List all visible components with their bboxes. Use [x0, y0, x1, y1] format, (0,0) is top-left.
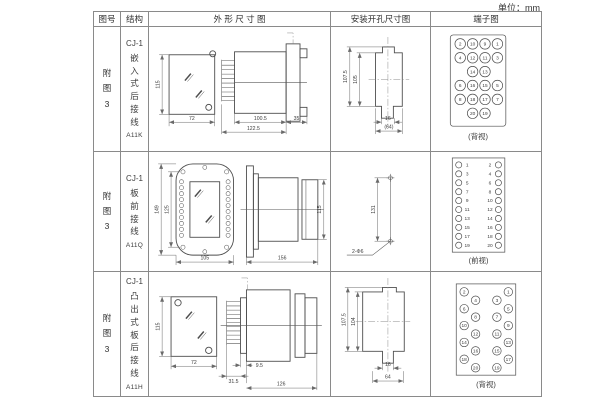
figure-no-text: 附图3 [101, 189, 113, 235]
structure-name: 板前接线 [129, 187, 140, 238]
svg-text:10: 10 [462, 323, 468, 329]
svg-text:12: 12 [487, 207, 493, 213]
dim-slot-width: 16 [385, 116, 391, 122]
install-drawing-a11h: 107.5 104 16 64 [331, 272, 430, 396]
col-header-outline: 外 形 尺 寸 图 [149, 12, 331, 27]
svg-text:18: 18 [470, 97, 476, 103]
svg-text:13: 13 [506, 340, 512, 346]
svg-text:6: 6 [459, 83, 462, 89]
structure-name: 嵌入式后接线 [129, 52, 140, 129]
dim-front-height: 115 [156, 322, 162, 330]
svg-text:8: 8 [474, 315, 477, 321]
svg-text:9: 9 [484, 42, 487, 48]
svg-text:11: 11 [494, 332, 499, 338]
structure-row1: CJ-1 嵌入式后接线 A11K [121, 27, 149, 152]
structure-model: CJ-1 [126, 174, 143, 183]
svg-text:10: 10 [487, 198, 493, 204]
outline-drawing-a11k: 115 72 100.5 35 122.5 [149, 27, 330, 151]
svg-text:13: 13 [465, 216, 471, 222]
front-view: 115 72 [155, 51, 215, 126]
svg-text:5: 5 [496, 83, 499, 89]
outline-drawing-a11q: 149 125 105 156 115 [149, 152, 330, 271]
figure-no-row1: 附图3 [94, 27, 121, 152]
holes-label: 2-Φ6 [352, 249, 364, 255]
terminal-diagram-a11h: 2 6 10 14 18 4 8 12 16 20 3 7 11 15 19 1… [431, 272, 541, 396]
install-drawing-a11q: 131 2-Φ6 [331, 152, 430, 271]
dim-depth: 156 [278, 256, 287, 262]
svg-text:5: 5 [466, 180, 469, 186]
svg-text:10: 10 [470, 42, 476, 48]
spec-table: 图号 结构 外 形 尺 寸 图 安装开孔尺寸图 端子图 附图3 CJ-1 嵌入式… [93, 11, 542, 397]
svg-text:16: 16 [473, 348, 479, 354]
svg-text:5: 5 [507, 306, 510, 312]
dim-total-depth: 126 [277, 382, 286, 388]
svg-text:7: 7 [496, 315, 499, 321]
install-cell-row1: 107.5 105 16 (64) [331, 27, 431, 152]
svg-text:8: 8 [459, 97, 462, 103]
dim-outer-height: 107.5 [341, 313, 347, 326]
svg-text:17: 17 [506, 357, 512, 363]
figure-no-text: 附图3 [101, 66, 113, 112]
svg-text:2: 2 [463, 289, 466, 295]
dim-opening-height: 104 [351, 317, 357, 326]
side-view: 100.5 35 122.5 [222, 33, 307, 134]
terminal-pins: 2 10 9 1 4 12 11 3 14 13 6 16 15 5 8 18 … [455, 39, 503, 119]
terminal-pins: 2 6 10 14 18 4 8 12 16 20 3 7 11 15 19 1… [460, 288, 513, 372]
install-drawing-a11k: 107.5 105 16 (64) [331, 27, 430, 151]
outline-drawing-a11h: 115 72 9.5 31.5 [149, 272, 330, 396]
structure-name: 凸出式板后接线 [129, 290, 140, 379]
structure-code: A11Q [126, 242, 143, 249]
side-view: 156 115 [240, 166, 326, 265]
dim-slot-width: 16 [385, 362, 391, 368]
dim-total-depth: 122.5 [247, 126, 260, 132]
structure-model: CJ-1 [126, 277, 143, 286]
svg-text:20: 20 [470, 111, 476, 117]
svg-text:7: 7 [496, 97, 499, 103]
svg-text:3: 3 [496, 55, 499, 61]
view-label: (背视) [468, 131, 488, 141]
svg-text:6: 6 [489, 180, 492, 186]
svg-text:1: 1 [466, 162, 469, 168]
svg-text:11: 11 [465, 207, 470, 213]
front-view: 149 125 105 [155, 164, 234, 265]
figure-no-row3: 附图3 [94, 272, 121, 396]
svg-text:13: 13 [482, 69, 488, 75]
dim-pins-depth: 31.5 [229, 379, 239, 385]
terminal-pins: 12 34 56 78 910 1112 1314 1516 1718 1920 [456, 162, 502, 249]
svg-text:17: 17 [465, 234, 471, 240]
svg-text:14: 14 [462, 340, 468, 346]
svg-text:2: 2 [489, 162, 492, 168]
structure-code: A11H [126, 384, 143, 391]
svg-text:15: 15 [482, 83, 488, 89]
svg-text:15: 15 [465, 225, 471, 231]
terminal-cell-row3: 2 6 10 14 18 4 8 12 16 20 3 7 11 15 19 1… [431, 272, 541, 396]
dim-flange-depth: 35 [294, 116, 300, 122]
svg-text:14: 14 [470, 69, 476, 75]
terminal-cell-row2: 12 34 56 78 910 1112 1314 1516 1718 1920… [431, 152, 541, 272]
install-cell-row2: 131 2-Φ6 [331, 152, 431, 272]
outline-cell-row2: 149 125 105 156 115 [149, 152, 331, 272]
svg-text:4: 4 [489, 171, 492, 177]
dim-body-depth: 100.5 [254, 116, 267, 122]
dim-total-width: 64 [385, 375, 391, 381]
svg-text:12: 12 [470, 55, 476, 61]
outline-cell-row1: 115 72 100.5 35 122.5 [149, 27, 331, 152]
svg-text:4: 4 [474, 298, 477, 304]
dim-front-height: 115 [155, 80, 161, 88]
dim-outer-height: 149 [155, 205, 161, 214]
terminal-cell-row1: 2 10 9 1 4 12 11 3 14 13 6 16 15 5 8 18 … [431, 27, 541, 152]
svg-text:4: 4 [459, 55, 462, 61]
view-label: (背视) [476, 379, 496, 389]
dim-flange-depth: 9.5 [256, 363, 263, 369]
structure-row2: CJ-1 板前接线 A11Q [121, 152, 149, 272]
svg-text:18: 18 [462, 357, 468, 363]
svg-text:20: 20 [473, 365, 479, 371]
svg-text:3: 3 [496, 298, 499, 304]
dim-opening-height: 105 [353, 75, 359, 84]
svg-text:16: 16 [487, 225, 493, 231]
outline-cell-row3: 115 72 9.5 31.5 [149, 272, 331, 396]
dim-total-width: (64) [384, 125, 393, 131]
svg-text:14: 14 [487, 216, 493, 222]
figure-no-text: 附图3 [101, 311, 113, 357]
structure-code: A11K [126, 132, 143, 139]
svg-text:11: 11 [483, 55, 488, 61]
structure-model: CJ-1 [126, 39, 143, 48]
svg-text:20: 20 [487, 243, 493, 249]
dim-hole-pitch: 131 [371, 205, 377, 214]
svg-text:2: 2 [459, 42, 462, 48]
figure-no-row2: 附图3 [94, 152, 121, 272]
svg-text:1: 1 [507, 289, 510, 295]
col-header-terminal: 端子图 [431, 12, 541, 27]
terminal-diagram-a11q: 12 34 56 78 910 1112 1314 1516 1718 1920… [431, 152, 541, 271]
svg-text:18: 18 [487, 234, 493, 240]
install-cell-row3: 107.5 104 16 64 [331, 272, 431, 396]
svg-text:12: 12 [473, 332, 479, 338]
svg-text:19: 19 [465, 243, 471, 249]
dim-outer-height: 107.5 [343, 70, 349, 83]
svg-text:3: 3 [466, 171, 469, 177]
structure-row3: CJ-1 凸出式板后接线 A11H [121, 272, 149, 396]
dim-hole-pitch: 125 [164, 205, 170, 214]
side-view: 9.5 31.5 126 [219, 278, 322, 390]
col-header-install: 安装开孔尺寸图 [331, 12, 431, 27]
svg-text:6: 6 [463, 306, 466, 312]
col-header-figure-no: 图号 [94, 12, 121, 27]
front-view: 115 72 [156, 297, 217, 369]
dim-front-width: 72 [191, 360, 197, 366]
terminal-diagram-a11k: 2 10 9 1 4 12 11 3 14 13 6 16 15 5 8 18 … [431, 27, 541, 151]
svg-text:16: 16 [470, 83, 476, 89]
svg-text:7: 7 [466, 189, 469, 195]
svg-text:8: 8 [489, 189, 492, 195]
svg-text:19: 19 [494, 365, 500, 371]
view-label: (前视) [469, 255, 489, 265]
svg-text:9: 9 [507, 323, 510, 329]
svg-text:1: 1 [496, 42, 499, 48]
svg-text:19: 19 [482, 111, 488, 117]
col-header-structure: 结构 [121, 12, 149, 27]
svg-text:15: 15 [494, 348, 500, 354]
svg-text:9: 9 [466, 198, 469, 204]
dim-front-width: 72 [189, 116, 195, 122]
dim-body-height: 115 [317, 205, 323, 213]
svg-text:17: 17 [482, 97, 488, 103]
dim-width: 105 [201, 256, 210, 262]
